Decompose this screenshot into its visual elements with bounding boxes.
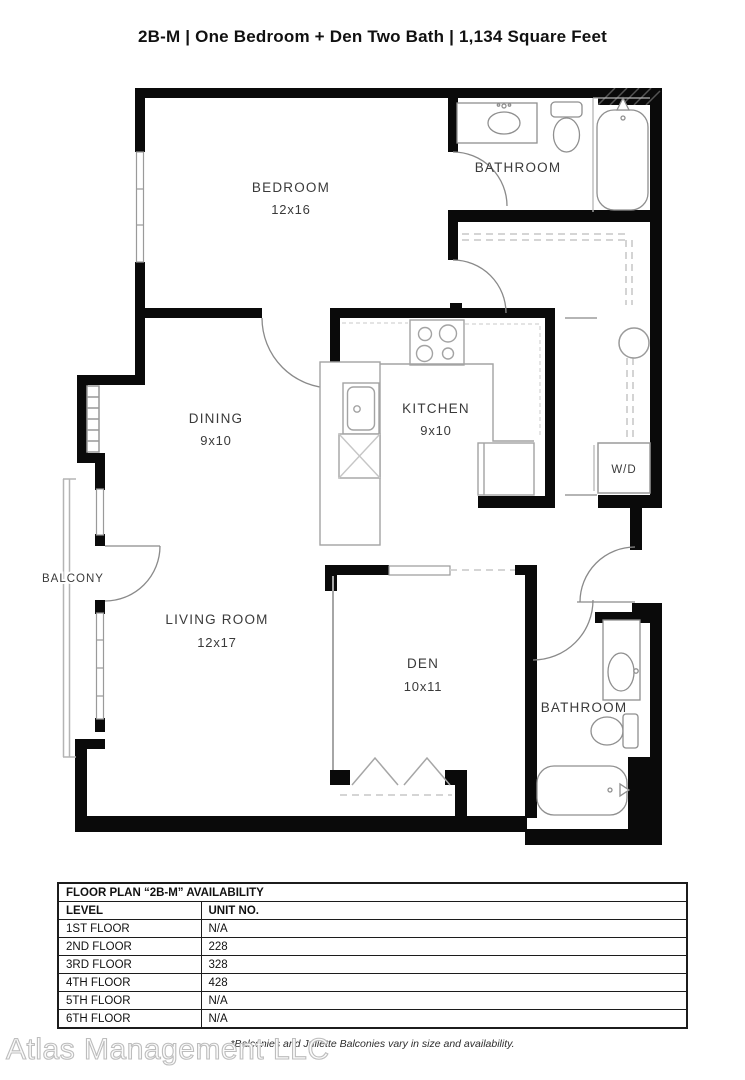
bedroom-window (137, 152, 144, 262)
level-cell: 6TH FLOOR (58, 1010, 201, 1029)
room-label-bedroom: BEDROOM (252, 180, 330, 195)
table-row: 1ST FLOOR N/A (58, 920, 687, 938)
unit-cell: 228 (201, 938, 687, 956)
room-dims-dining: 9x10 (200, 433, 231, 448)
level-cell: 1ST FLOOR (58, 920, 201, 938)
toilet-bowl-icon (554, 118, 580, 152)
balcony-door-arc (105, 546, 160, 601)
col-header-unit: UNIT NO. (201, 902, 687, 920)
bath-lower-door-arc (533, 600, 593, 660)
unit-cell: 428 (201, 974, 687, 992)
level-cell: 2ND FLOOR (58, 938, 201, 956)
table-title-row: FLOOR PLAN “2B-M” AVAILABILITY (58, 883, 687, 902)
windows (96, 152, 450, 719)
level-cell: 4TH FLOOR (58, 974, 201, 992)
table-row: 6TH FLOOR N/A (58, 1010, 687, 1029)
room-label-den: DEN (407, 656, 439, 671)
vanity-icon (457, 103, 537, 143)
den-elements (87, 386, 450, 785)
fridge-icon (478, 443, 534, 495)
bifold-door-icon (404, 758, 450, 785)
bath-lower-fixtures (537, 620, 640, 815)
table-row: 2ND FLOOR 228 (58, 938, 687, 956)
room-dims-den: 10x11 (404, 679, 442, 694)
flyer-page: 2B-M | One Bedroom + Den Two Bath | 1,13… (0, 0, 745, 1080)
table-header-row: LEVEL UNIT NO. (58, 902, 687, 920)
table-title: FLOOR PLAN “2B-M” AVAILABILITY (58, 883, 687, 902)
toilet-tank-icon (551, 102, 582, 117)
utility-fixtures (565, 318, 650, 495)
bathtub-icon (597, 110, 648, 210)
room-label-bathroom-upper: BATHROOM (475, 160, 562, 175)
unit-cell: 328 (201, 956, 687, 974)
toilet-bowl-icon (591, 717, 623, 745)
unit-cell: N/A (201, 1010, 687, 1029)
bifold-door-icon (352, 758, 398, 785)
unit-cell: N/A (201, 920, 687, 938)
room-label-living: LIVING ROOM (165, 612, 268, 627)
room-label-bathroom-lower: BATHROOM (541, 700, 628, 715)
toilet-tank-icon (623, 714, 638, 748)
den-cased-opening (389, 566, 450, 575)
room-dims-living: 12x17 (197, 635, 236, 650)
room-dims-kitchen: 9x10 (420, 423, 451, 438)
table-row: 4TH FLOOR 428 (58, 974, 687, 992)
entry-door-arc (580, 547, 635, 602)
room-label-washer-dryer: W/D (611, 464, 636, 476)
unit-cell: N/A (201, 992, 687, 1010)
table-row: 3RD FLOOR 328 (58, 956, 687, 974)
tub-faucet-icon (620, 784, 629, 796)
watermark: Atlas Management LLC (6, 1033, 330, 1067)
bath-upper-fixtures (457, 98, 650, 212)
living-window-upper (97, 489, 104, 535)
availability-table: FLOOR PLAN “2B-M” AVAILABILITY LEVEL UNI… (57, 882, 688, 1029)
floor-plan: BEDROOM 12x16 BATHROOM DINING 9x10 KITCH… (0, 0, 745, 870)
room-dims-bedroom: 12x16 (271, 202, 310, 217)
room-label-dining: DINING (189, 411, 243, 426)
bathtub-icon (537, 766, 627, 815)
table-row: 5TH FLOOR N/A (58, 992, 687, 1010)
level-cell: 3RD FLOOR (58, 956, 201, 974)
room-label-balcony: BALCONY (42, 573, 104, 585)
col-header-level: LEVEL (58, 902, 201, 920)
balcony-railing (63, 479, 76, 757)
level-cell: 5TH FLOOR (58, 992, 201, 1010)
room-label-kitchen: KITCHEN (402, 401, 470, 416)
living-window-lower (97, 613, 104, 719)
vanity-icon (603, 620, 640, 700)
water-heater-circle (619, 328, 649, 358)
